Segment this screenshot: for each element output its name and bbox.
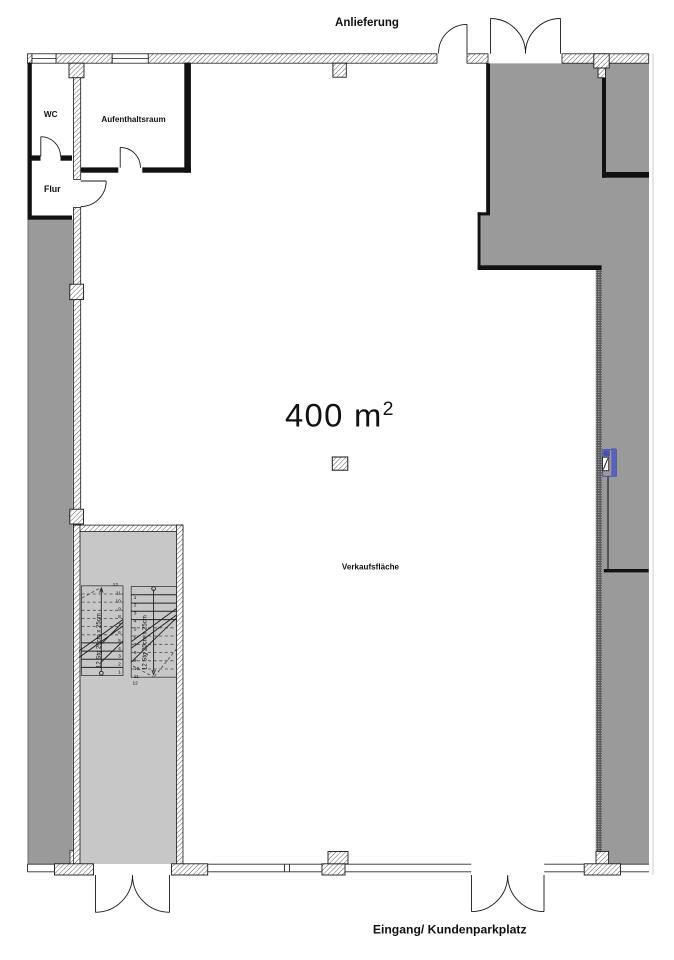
- svg-text:2: 2: [134, 603, 137, 609]
- svg-text:10: 10: [134, 666, 140, 672]
- svg-text:6: 6: [118, 630, 121, 636]
- svg-text:6: 6: [134, 634, 137, 640]
- svg-text:Anlieferung: Anlieferung: [335, 17, 399, 29]
- svg-text:400 m2: 400 m2: [285, 397, 395, 434]
- svg-text:10: 10: [115, 598, 121, 604]
- svg-text:3: 3: [134, 611, 137, 617]
- svg-text:8: 8: [118, 614, 121, 620]
- svg-text:9: 9: [134, 658, 137, 664]
- svg-text:9: 9: [118, 606, 121, 612]
- svg-text:11: 11: [116, 591, 121, 597]
- svg-text:5: 5: [118, 638, 121, 644]
- svg-text:1: 1: [118, 670, 121, 676]
- svg-text:4: 4: [118, 646, 121, 652]
- svg-text:12 Stg 20cm x 25cm: 12 Stg 20cm x 25cm: [97, 613, 103, 668]
- svg-text:12: 12: [133, 681, 139, 687]
- svg-text:12: 12: [113, 582, 119, 588]
- svg-text:Eingang/ Kundenparkplatz: Eingang/ Kundenparkplatz: [373, 923, 527, 937]
- svg-text:12 Stg 20cm x 25cm: 12 Stg 20cm x 25cm: [143, 615, 149, 670]
- svg-text:8: 8: [134, 650, 137, 656]
- svg-text:Aufenthaltsraum: Aufenthaltsraum: [101, 115, 165, 124]
- svg-text:Verkaufsfläche: Verkaufsfläche: [342, 563, 400, 572]
- svg-text:WC: WC: [44, 110, 58, 119]
- svg-text:Flur: Flur: [44, 184, 61, 194]
- svg-text:11: 11: [134, 674, 139, 680]
- svg-text:7: 7: [134, 642, 137, 648]
- svg-text:3: 3: [118, 654, 121, 660]
- svg-text:2: 2: [118, 662, 121, 668]
- svg-text:5: 5: [134, 626, 137, 632]
- svg-text:7: 7: [118, 622, 121, 628]
- svg-text:1: 1: [134, 595, 137, 601]
- svg-text:4: 4: [134, 619, 137, 625]
